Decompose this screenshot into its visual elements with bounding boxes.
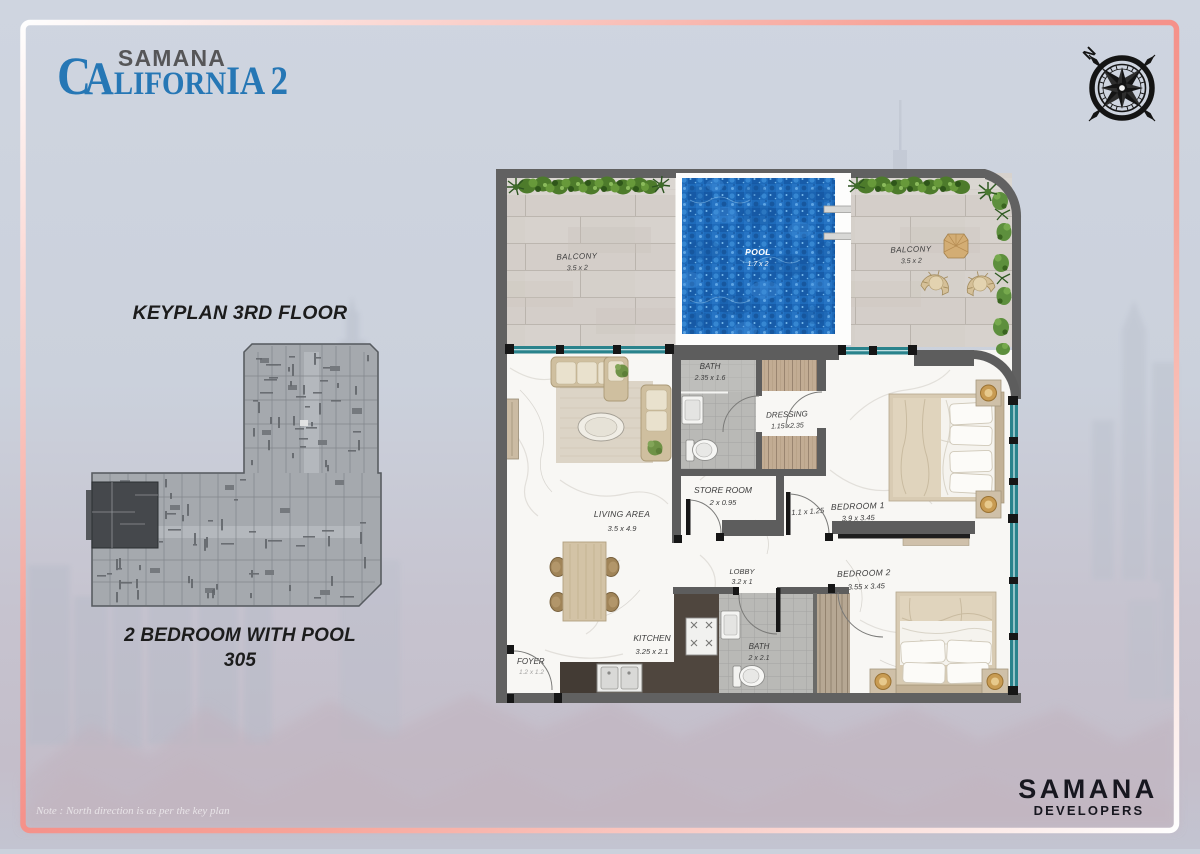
svg-text:3.5 x 2: 3.5 x 2 [901,258,922,266]
svg-text:KITCHEN: KITCHEN [633,633,671,643]
svg-text:1.15 x2.35: 1.15 x2.35 [771,422,804,430]
svg-text:KEYPLAN 3RD FLOOR: KEYPLAN 3RD FLOOR [133,302,348,324]
svg-text:BATH: BATH [700,362,721,371]
svg-text:3.5 x 2: 3.5 x 2 [567,265,588,273]
svg-text:3.55 x 3.45: 3.55 x 3.45 [848,581,886,591]
svg-text:BEDROOM 2: BEDROOM 2 [837,567,891,579]
svg-text:2 BEDROOM WITH POOL: 2 BEDROOM WITH POOL [123,625,356,646]
svg-text:3.2 x 1: 3.2 x 1 [731,579,752,586]
svg-text:BEDROOM 1: BEDROOM 1 [831,500,885,512]
svg-text:STORE ROOM: STORE ROOM [694,485,753,495]
svg-text:SAMANA: SAMANA [1018,774,1158,804]
svg-text:1.7 x 2: 1.7 x 2 [747,261,768,268]
svg-text:2 x 0.95: 2 x 0.95 [709,498,738,507]
svg-text:305: 305 [224,650,257,671]
svg-text:BALCONY: BALCONY [556,251,598,261]
svg-text:2.35 x 1.6: 2.35 x 1.6 [694,375,726,382]
svg-text:Note : North direction is as p: Note : North direction is as per the key… [35,805,230,817]
svg-text:2 x 2.1: 2 x 2.1 [747,655,769,662]
svg-text:LIVING AREA: LIVING AREA [594,509,650,519]
svg-text:DEVELOPERS: DEVELOPERS [1034,803,1145,818]
svg-text:POOL: POOL [745,247,771,257]
svg-text:LOBBY: LOBBY [729,567,755,576]
svg-text:BATH: BATH [749,642,770,651]
svg-text:3.25 x 2.1: 3.25 x 2.1 [636,647,669,656]
svg-text:1.2 x 1.2: 1.2 x 1.2 [519,669,544,676]
svg-text:BALCONY: BALCONY [890,244,932,254]
svg-text:3.5 x 4.9: 3.5 x 4.9 [608,524,638,533]
